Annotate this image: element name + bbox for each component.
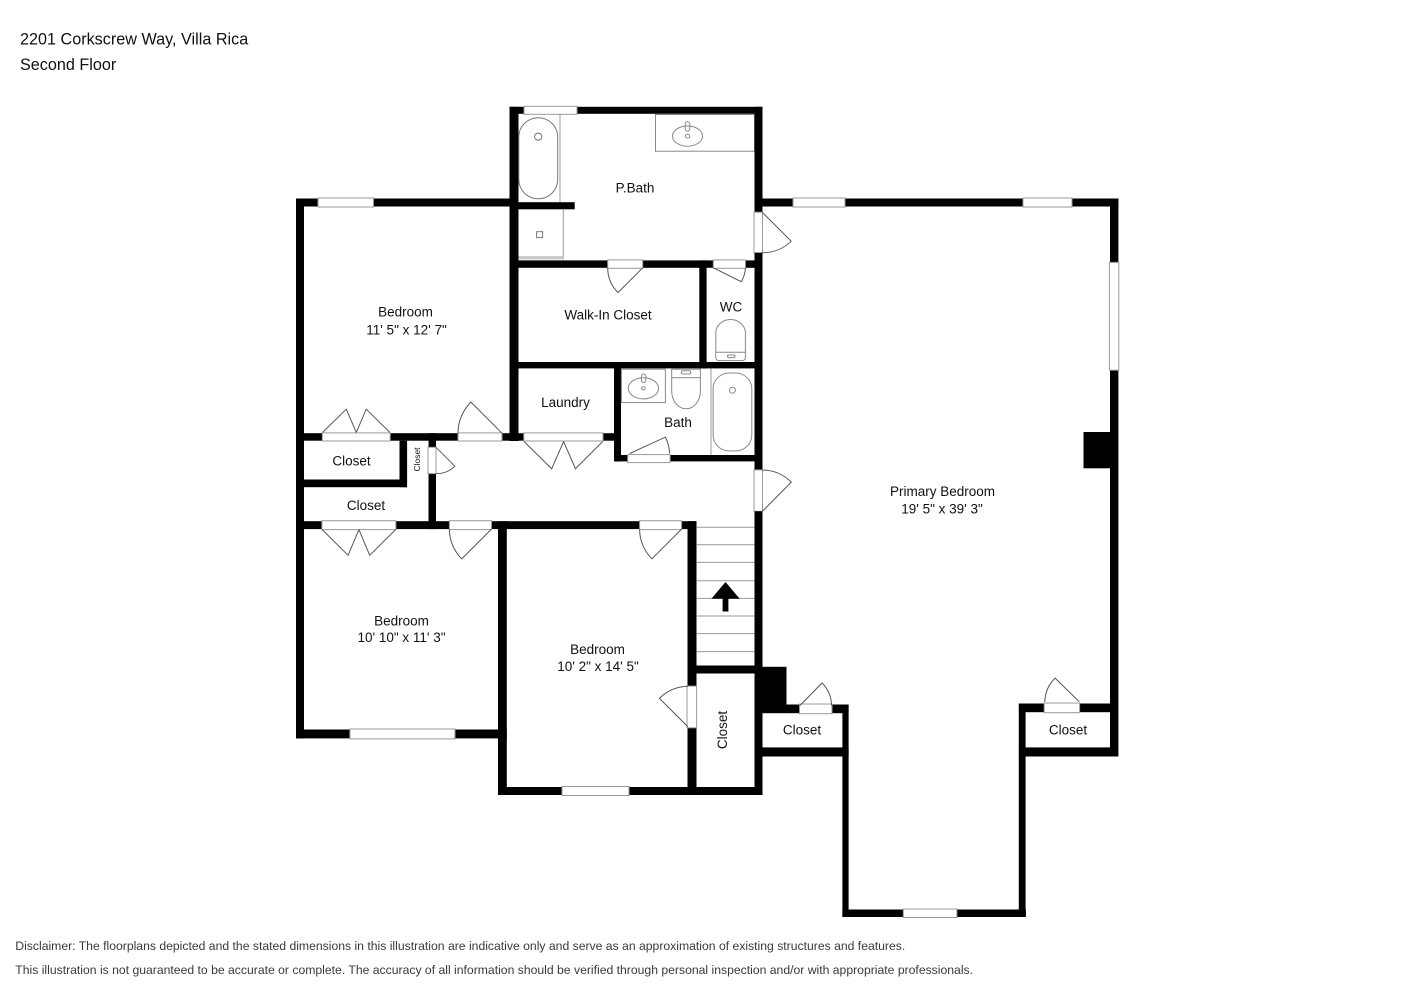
svg-text:19' 5" x 39' 3": 19' 5" x 39' 3" xyxy=(901,502,983,517)
svg-text:Closet: Closet xyxy=(1049,722,1088,737)
svg-text:This illustration is not guara: This illustration is not guaranteed to b… xyxy=(15,963,973,977)
svg-text:Bedroom: Bedroom xyxy=(570,642,625,657)
svg-text:P.Bath: P.Bath xyxy=(616,181,655,196)
svg-text:WC: WC xyxy=(720,300,743,315)
svg-text:Walk-In Closet: Walk-In Closet xyxy=(564,308,652,323)
svg-text:Disclaimer: The floorplans dep: Disclaimer: The floorplans depicted and … xyxy=(15,939,905,953)
svg-text:10' 10" x 11' 3": 10' 10" x 11' 3" xyxy=(357,630,445,645)
svg-text:Laundry: Laundry xyxy=(541,395,590,410)
svg-text:Bath: Bath xyxy=(664,415,692,430)
svg-text:Closet: Closet xyxy=(783,722,822,737)
svg-text:10' 2" x 14' 5": 10' 2" x 14' 5" xyxy=(557,659,639,674)
svg-text:Primary Bedroom: Primary Bedroom xyxy=(890,484,995,499)
svg-text:Closet: Closet xyxy=(347,498,386,513)
svg-text:Second Floor: Second Floor xyxy=(20,56,117,74)
svg-text:Bedroom: Bedroom xyxy=(378,305,433,320)
svg-text:Closet: Closet xyxy=(715,711,730,750)
svg-text:Bedroom: Bedroom xyxy=(374,614,429,629)
svg-text:11' 5" x 12' 7": 11' 5" x 12' 7" xyxy=(366,323,447,338)
svg-text:2201 Corkscrew Way, Villa Rica: 2201 Corkscrew Way, Villa Rica xyxy=(20,30,248,48)
svg-text:Closet: Closet xyxy=(332,454,371,469)
svg-text:Closet: Closet xyxy=(412,447,422,472)
